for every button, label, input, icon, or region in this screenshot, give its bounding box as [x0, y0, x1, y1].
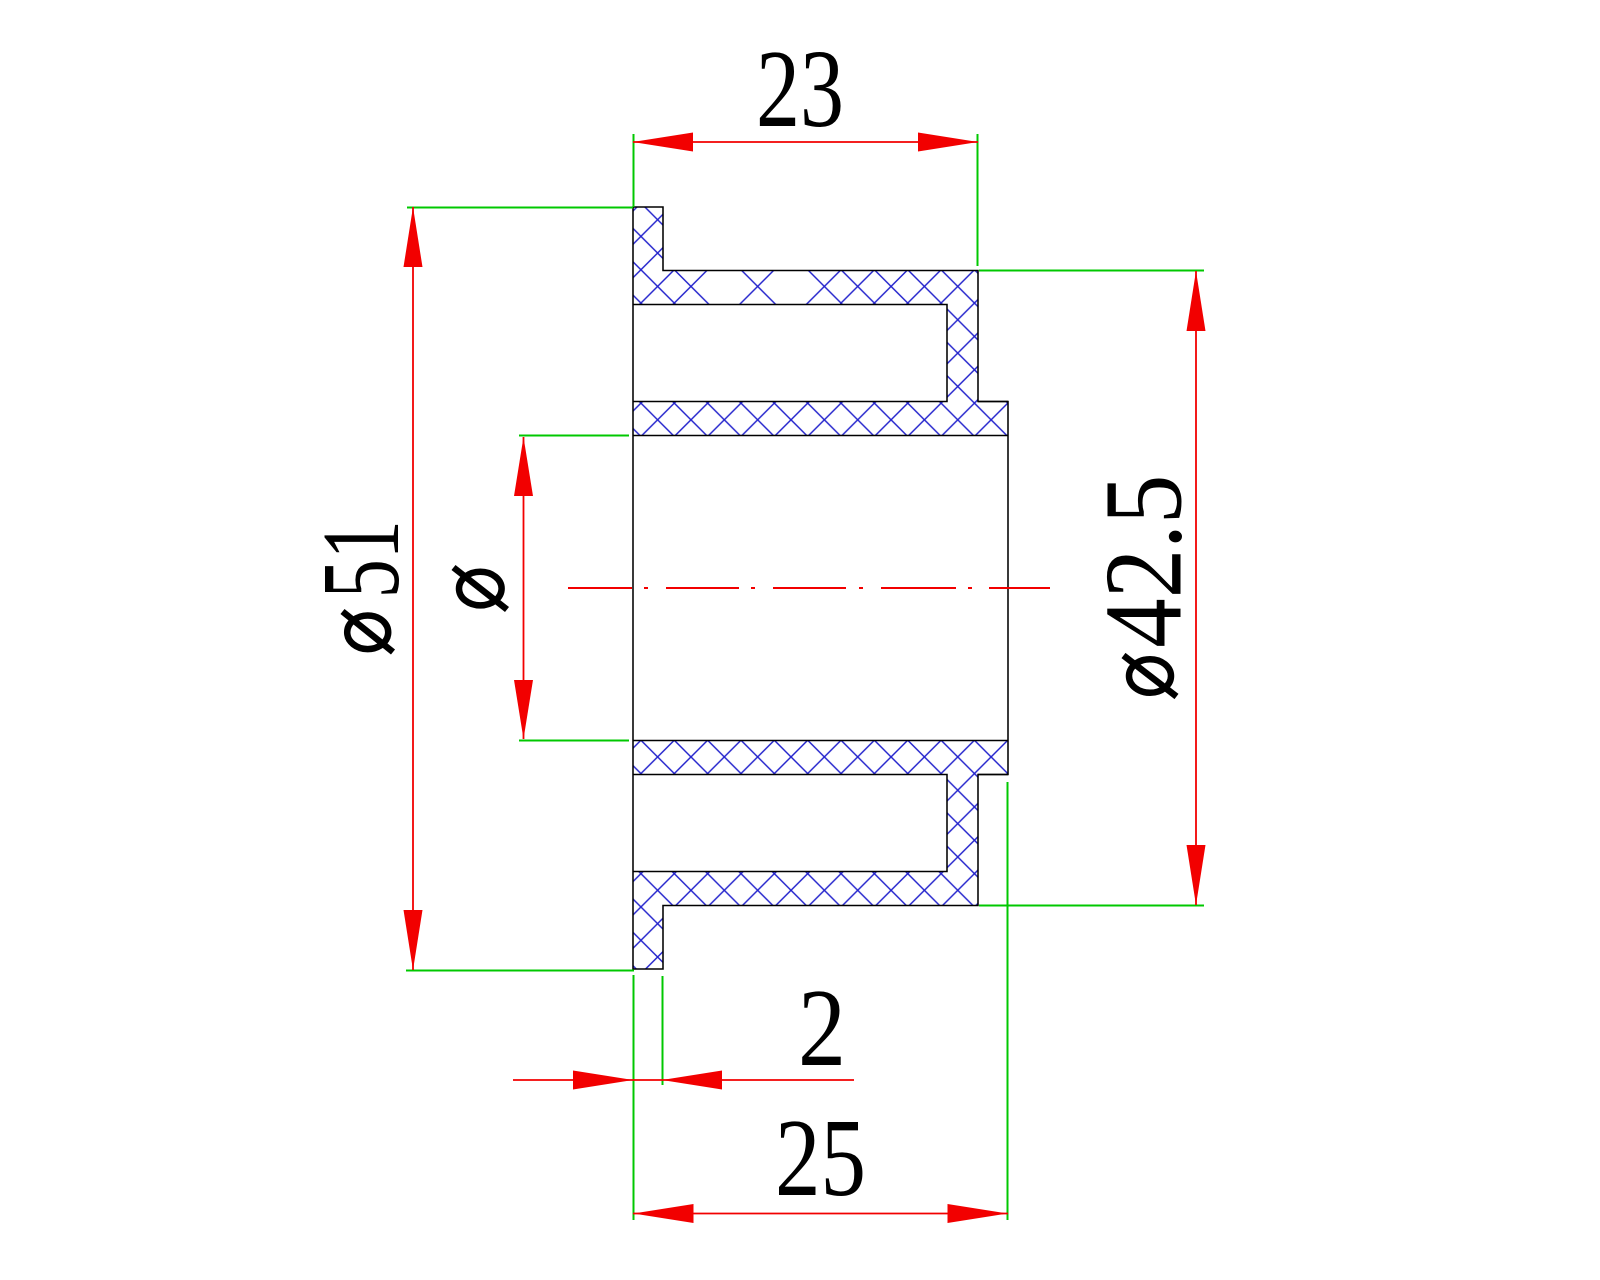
svg-text:2: 2	[798, 967, 846, 1090]
svg-text:42.5: 42.5	[1083, 475, 1206, 648]
svg-text:51: 51	[300, 520, 423, 598]
svg-text:23: 23	[756, 28, 844, 151]
svg-text:25: 25	[775, 1097, 866, 1220]
